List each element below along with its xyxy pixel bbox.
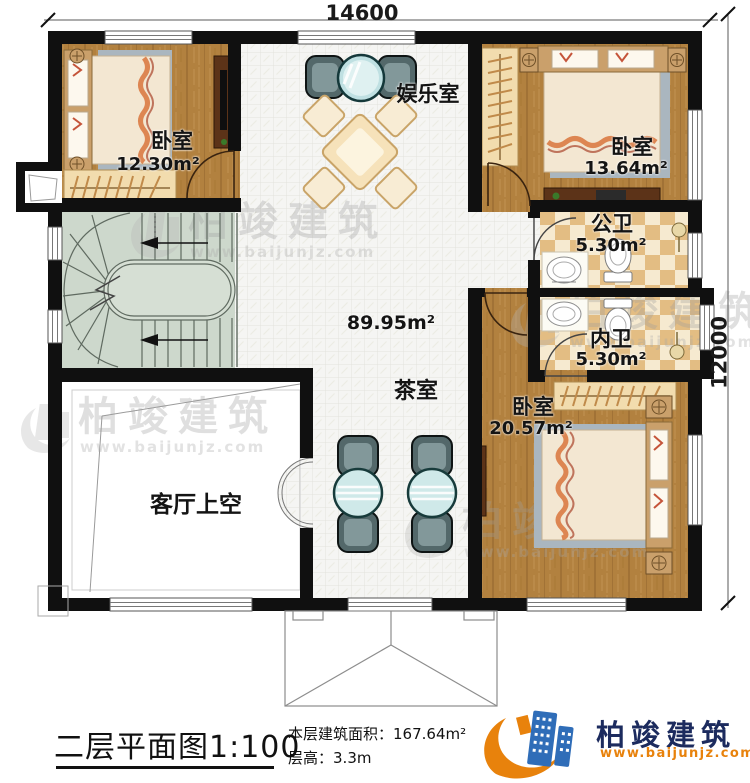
toilet-tank bbox=[604, 299, 632, 308]
tea-table-set bbox=[334, 436, 382, 552]
room-area-ensuite-bathroom: 5.30m² bbox=[575, 351, 646, 369]
pillow bbox=[552, 50, 598, 68]
window bbox=[348, 598, 432, 611]
window bbox=[688, 233, 702, 278]
window bbox=[527, 598, 626, 611]
brand-logo-icon bbox=[484, 710, 575, 778]
plan-title-underline bbox=[56, 766, 274, 769]
room-label-ensuite-bathroom: 内卫 bbox=[590, 329, 632, 350]
plan-scale: 1:100 bbox=[209, 730, 300, 765]
tv bbox=[220, 70, 227, 130]
floor-area-label: 本层建筑面积： bbox=[288, 725, 393, 743]
room-area-bedroom-top-right: 13.64m² bbox=[584, 160, 668, 178]
window bbox=[688, 110, 702, 200]
floor-plan-page: 柏竣建筑 www.baijunjz.com 柏竣建筑 www.baijunjz.… bbox=[0, 0, 750, 783]
room-label-bedroom-top-left: 卧室 bbox=[151, 131, 193, 152]
floor-height-value: 3.3m bbox=[333, 749, 371, 767]
shower-head bbox=[672, 223, 686, 237]
window bbox=[48, 310, 62, 343]
sink bbox=[547, 302, 581, 326]
room-area-bedroom-bottom: 20.57m² bbox=[489, 420, 573, 438]
laptop bbox=[596, 190, 626, 201]
window bbox=[688, 435, 702, 525]
room-label-public-bathroom: 公卫 bbox=[591, 214, 633, 235]
watermark-text: 柏竣建筑 bbox=[78, 394, 278, 440]
room-label-living-void: 客厅上空 bbox=[150, 494, 242, 517]
tea-table-set bbox=[408, 436, 456, 552]
window bbox=[110, 598, 252, 611]
room-area-bedroom-top-left: 12.30m² bbox=[116, 156, 200, 174]
plan-title: 二层平面图1:100 bbox=[54, 722, 300, 766]
left-niche bbox=[25, 171, 62, 203]
dimension-right: 12000 bbox=[710, 311, 731, 395]
porch-roof bbox=[285, 611, 497, 706]
floor-plan-drawing: 柏竣建筑 www.baijunjz.com 柏竣建筑 www.baijunjz.… bbox=[0, 0, 750, 783]
watermark-url: www.baijunjz.com bbox=[190, 243, 375, 261]
floor-area-stat: 本层建筑面积：167.64m² bbox=[288, 723, 466, 744]
window bbox=[48, 227, 62, 260]
pillow bbox=[608, 50, 654, 68]
brand-website: www.baijunjz.com bbox=[600, 746, 750, 761]
watermark-url: www.baijunjz.com bbox=[80, 438, 265, 456]
plan-title-text: 二层平面图 bbox=[54, 730, 209, 765]
room-label-bedroom-top-right: 卧室 bbox=[611, 137, 653, 158]
room-label-bedroom-bottom: 卧室 bbox=[512, 397, 554, 418]
window bbox=[105, 31, 192, 44]
dimension-top: 14600 bbox=[322, 3, 402, 24]
pillow bbox=[650, 430, 668, 480]
floor-area-value: 167.64m² bbox=[393, 725, 466, 743]
floor-height-label: 层高： bbox=[288, 749, 333, 767]
room-label-entertainment: 娱乐室 bbox=[397, 84, 460, 105]
window bbox=[298, 31, 415, 44]
pillow bbox=[650, 488, 668, 538]
floor-height-stat: 层高：3.3m bbox=[288, 747, 371, 768]
room-label-tea-room: 茶室 bbox=[394, 381, 438, 403]
sink bbox=[547, 257, 581, 283]
pillow bbox=[68, 112, 88, 158]
hall-area-label: 89.95m² bbox=[347, 314, 435, 333]
room-area-public-bathroom: 5.30m² bbox=[575, 237, 646, 255]
shower-head bbox=[670, 345, 684, 359]
